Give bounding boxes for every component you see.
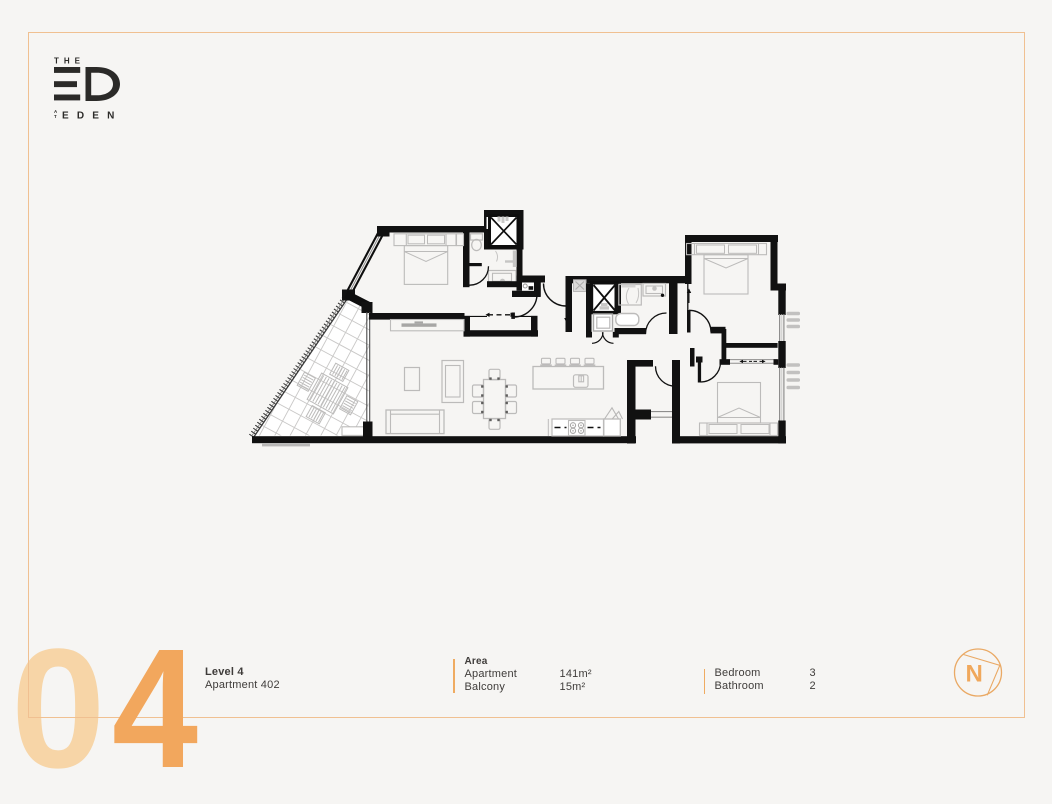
svg-text:T: T [54, 114, 57, 119]
svg-text:EDEN: EDEN [62, 111, 123, 122]
svg-text:N: N [966, 661, 983, 688]
svg-text:THE: THE [54, 57, 85, 66]
